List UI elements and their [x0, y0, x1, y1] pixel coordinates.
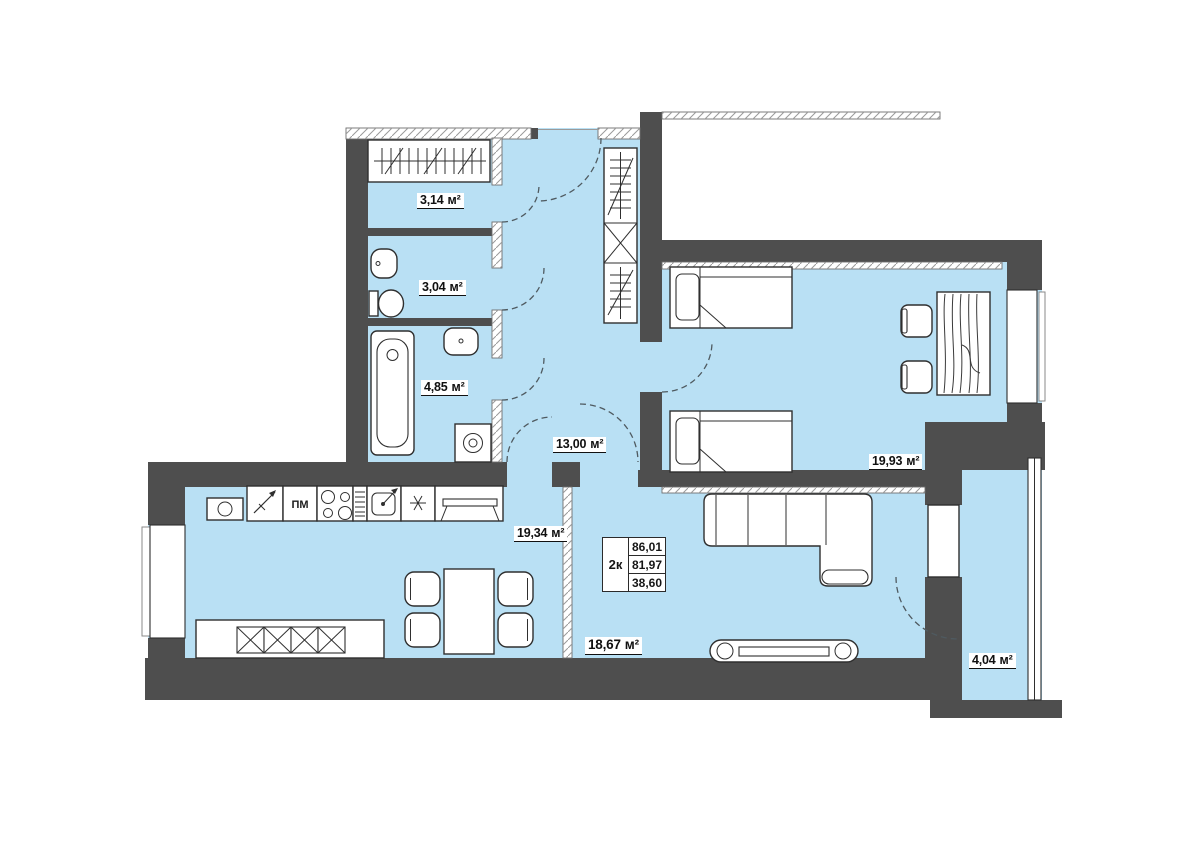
wall-bedroom-right-lower	[1007, 403, 1042, 423]
room-area-unit: м²	[551, 526, 564, 540]
room-area-value: 3,14	[420, 193, 444, 207]
room-area-unit: м²	[625, 637, 639, 652]
hatch-pier-2	[492, 222, 502, 268]
room-label-bathroom: 4,85м²	[421, 380, 468, 396]
floor-plan: ПМ	[0, 0, 1200, 848]
wall-bottom	[145, 658, 962, 700]
room-label-hallway: 13,00м²	[553, 437, 606, 453]
hatch-top-boundary	[662, 112, 940, 119]
balcony-glazing	[1028, 458, 1041, 700]
apartment-summary-table: 2к 86,01 81,97 38,60	[602, 537, 666, 592]
kitchen-counter: ПМ	[207, 486, 503, 521]
desk-chair-1	[901, 305, 932, 337]
wall-utility-left	[346, 138, 368, 462]
wall-kitchen-left-lower	[148, 638, 185, 658]
kitchen-window	[142, 525, 185, 638]
room-label-wardrobe: 3,14м²	[417, 193, 464, 209]
hall-wardrobe	[604, 148, 637, 323]
kitchen-sink	[367, 486, 401, 521]
balcony-door-leaf	[928, 505, 959, 577]
toilet-wc	[369, 290, 404, 317]
toilet-sink	[371, 249, 397, 278]
wall-kitchen-left-upper	[148, 487, 185, 525]
room-label-living-room: 18,67м²	[585, 637, 642, 655]
dining-table	[444, 569, 494, 654]
room-area-value: 3,04	[422, 280, 446, 294]
apartment-type-label: 2к	[603, 538, 629, 591]
hatch-top-entrance-right	[598, 128, 640, 139]
room-label-bedroom: 19,93м²	[869, 454, 922, 470]
bed-2	[670, 411, 792, 472]
wall-corridor-right-upper	[640, 112, 662, 342]
pillow	[676, 274, 699, 320]
room-area-value: 19,34	[517, 526, 547, 540]
wall-bedroom-right-upper	[1007, 262, 1042, 290]
floor-plan-drawing: ПМ	[0, 0, 1200, 848]
hatch-pier-1	[492, 138, 502, 185]
bathtub	[371, 331, 414, 455]
room-area-unit: м²	[448, 193, 461, 207]
hatch-pier-4	[492, 400, 502, 462]
wall-toilet-bathroom	[346, 318, 492, 326]
area-value-2: 81,97	[629, 555, 665, 573]
bathroom-sink	[444, 328, 478, 355]
wardrobe-rail	[368, 140, 490, 182]
room-area-value: 4,04	[972, 653, 996, 667]
svg-text:ПМ: ПМ	[291, 499, 308, 511]
appliance-electric	[247, 486, 283, 521]
room-area-unit: м²	[452, 380, 465, 394]
wall-bedroom-top	[640, 240, 1042, 262]
kitchen-sideboard	[196, 620, 384, 658]
tv-stand	[710, 640, 858, 662]
room-area-unit: м²	[450, 280, 463, 294]
room-area-unit: м²	[1000, 653, 1013, 667]
wall-wardrobe-toilet	[346, 228, 492, 236]
bed-1	[670, 267, 792, 328]
appliance-stove	[317, 486, 353, 521]
room-area-value: 13,00	[556, 437, 586, 451]
room-label-kitchen: 19,34м²	[514, 526, 567, 542]
wall-balcony-bottom	[930, 700, 1062, 718]
hatch-pier-3	[492, 310, 502, 358]
total-area-value: 86,01	[629, 538, 665, 555]
room-area-value: 4,85	[424, 380, 448, 394]
room-area-value: 19,93	[872, 454, 902, 468]
desk-chair-2	[901, 361, 932, 393]
wall-living-right-lower	[925, 577, 962, 658]
living-area-value: 38,60	[629, 573, 665, 591]
room-area-value: 18,67	[588, 637, 621, 652]
hatch-top-utility	[346, 128, 531, 139]
floor-areas	[148, 128, 1042, 705]
bedroom-window	[1007, 290, 1045, 403]
wall-entrance-jamb	[531, 128, 538, 139]
room-label-toilet: 3,04м²	[419, 280, 466, 296]
room-label-balcony: 4,04м²	[969, 653, 1016, 669]
appliance-box-circle	[207, 498, 243, 520]
pillow	[676, 418, 699, 464]
wall-corridor-stub	[552, 462, 580, 487]
room-area-unit: м²	[590, 437, 603, 451]
hatch-planned-partition	[563, 487, 572, 658]
appliance-fridge	[401, 486, 435, 521]
wall-living-right-upper	[925, 458, 962, 505]
room-area-unit: м²	[906, 454, 919, 468]
desk	[937, 292, 990, 395]
wall-kitchen-top	[148, 462, 507, 487]
counter-table	[435, 486, 503, 521]
appliance-dishwasher: ПМ	[283, 486, 317, 521]
washing-machine	[455, 424, 491, 462]
hatch-living-top	[662, 487, 925, 493]
appliance-drainer	[353, 486, 367, 521]
